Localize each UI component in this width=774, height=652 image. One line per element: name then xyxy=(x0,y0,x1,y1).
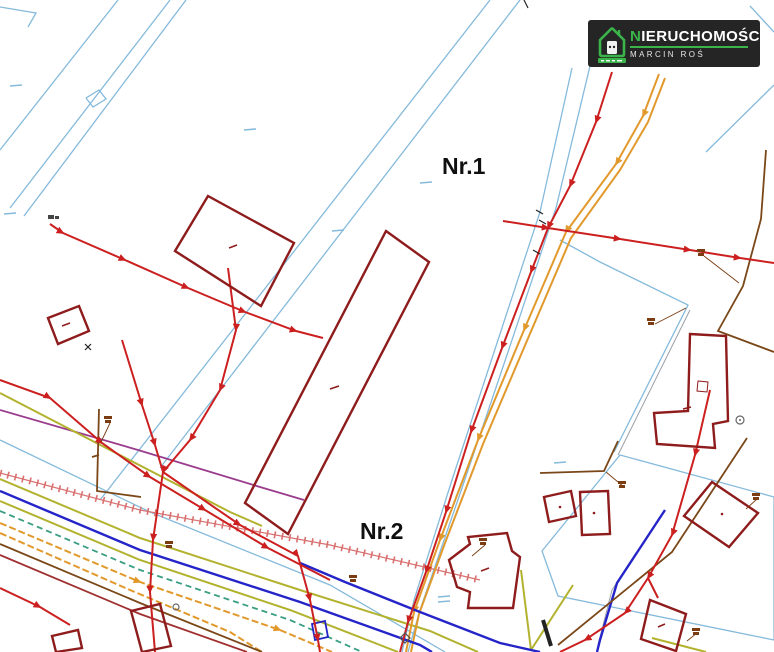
brown-boundary-lines xyxy=(0,150,774,652)
brown-line xyxy=(718,150,774,352)
survey-label xyxy=(165,541,173,548)
purple-utility-line xyxy=(0,410,304,500)
black-dash xyxy=(539,220,546,224)
house-icon xyxy=(594,24,630,64)
survey-label xyxy=(104,416,112,423)
building-outline xyxy=(641,600,686,651)
blue-utility-lines xyxy=(0,491,665,652)
circle-symbol-dot xyxy=(739,419,741,421)
brown-line xyxy=(97,409,141,497)
parcel-polygon xyxy=(542,455,774,640)
survey-label xyxy=(752,493,760,500)
brown-line xyxy=(558,438,747,645)
parcel-line xyxy=(100,0,490,500)
building-dot xyxy=(593,512,596,515)
orange-line xyxy=(0,533,262,652)
olive-line xyxy=(531,585,573,650)
building-notch xyxy=(697,381,708,392)
parcel-line xyxy=(560,240,688,452)
brand-subtitle: MARCIN ROŚ xyxy=(630,50,764,59)
agency-logo: NIERUCHOMOŚCI MARCIN ROŚ xyxy=(588,20,760,67)
cadastral-map-canvas: Nr.1 Nr.2 NIERUCHOMOŚCI MARCIN ROŚ xyxy=(0,0,774,652)
building-outline xyxy=(48,306,89,344)
building-dash xyxy=(330,386,339,389)
red-line-crimson-a xyxy=(0,380,330,580)
building-dash xyxy=(481,568,489,571)
brown-line xyxy=(0,544,262,652)
map-drawing: Nr.1 Nr.2 xyxy=(0,0,774,652)
survey-label xyxy=(618,481,626,488)
parcel-line xyxy=(24,0,186,216)
red-line-corner xyxy=(0,588,70,625)
teal-utility-line xyxy=(0,511,362,652)
brand-underline xyxy=(630,46,748,48)
embankment-hatch-line xyxy=(0,473,480,580)
building-dash xyxy=(683,407,691,409)
tiny-text-mark xyxy=(48,215,54,219)
black-dash xyxy=(524,0,528,8)
area-label-nr1: Nr.1 xyxy=(442,153,486,179)
parcel-line xyxy=(0,440,445,652)
building-outline xyxy=(52,630,82,652)
parcel-line xyxy=(160,0,520,468)
brand-first-letter: N xyxy=(630,28,641,45)
building-dash xyxy=(62,323,70,326)
blue-line xyxy=(597,510,665,652)
area-label-nr2: Nr.2 xyxy=(360,518,403,544)
brown-line xyxy=(540,441,618,473)
red-line-branch xyxy=(150,268,236,652)
building-dot xyxy=(559,506,562,509)
tiny-text-mark xyxy=(55,216,59,219)
parcel-line xyxy=(0,7,36,27)
orange-utility-lines xyxy=(0,74,665,652)
red-utility-lines xyxy=(0,72,774,652)
logo-text-block: NIERUCHOMOŚCI MARCIN ROŚ xyxy=(630,29,768,59)
olive-line xyxy=(521,570,531,650)
brand-name: NIERUCHOMOŚCI xyxy=(630,29,764,45)
grey-line xyxy=(618,310,690,455)
red-branch-short xyxy=(648,578,658,598)
red-line-left xyxy=(50,224,323,338)
house-logo-icon xyxy=(594,24,630,64)
survey-label xyxy=(647,318,655,325)
building-dot xyxy=(721,513,724,516)
parcel-line xyxy=(706,85,774,152)
parcel-outline-long xyxy=(245,231,429,534)
building-dash xyxy=(658,624,665,627)
grey-boundary-lines xyxy=(598,310,690,645)
survey-label xyxy=(349,575,357,582)
survey-label xyxy=(479,538,487,545)
teal-line xyxy=(0,511,362,652)
building-dash xyxy=(229,245,237,248)
brand-rest: IERUCHOMOŚCI xyxy=(641,28,764,45)
brown-line xyxy=(0,555,247,652)
hatch-ticks xyxy=(0,473,480,580)
parcel-line xyxy=(0,0,118,150)
purple-line xyxy=(0,410,304,500)
